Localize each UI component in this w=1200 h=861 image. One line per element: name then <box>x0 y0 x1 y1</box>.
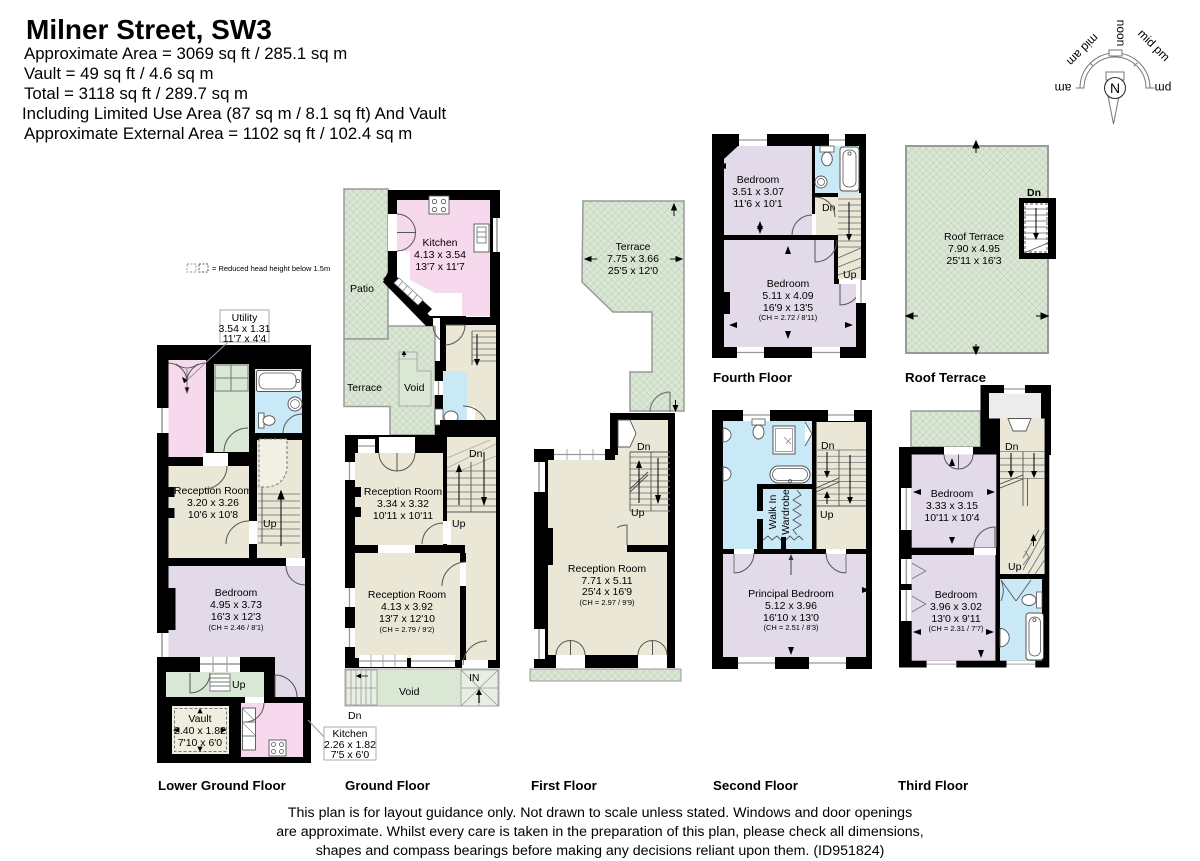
svg-text:Including Limited Use Area (87: Including Limited Use Area (87 sq m / 8.… <box>22 104 446 123</box>
svg-text:3.51 x 3.07: 3.51 x 3.07 <box>732 186 784 198</box>
svg-text:Roof Terrace: Roof Terrace <box>944 231 1004 243</box>
svg-text:25'5 x 12'0: 25'5 x 12'0 <box>608 265 658 277</box>
svg-text:Dn: Dn <box>469 448 483 460</box>
svg-text:(CH = 2.51 / 8'3): (CH = 2.51 / 8'3) <box>764 623 820 632</box>
svg-text:Principal Bedroom: Principal Bedroom <box>748 588 834 600</box>
svg-text:3.96 x 3.02: 3.96 x 3.02 <box>930 601 982 613</box>
svg-text:Wardrobe: Wardrobe <box>780 489 792 535</box>
svg-text:13'7 x 12'10: 13'7 x 12'10 <box>379 613 435 625</box>
svg-text:Up: Up <box>232 679 246 691</box>
svg-text:Patio: Patio <box>350 283 374 295</box>
svg-text:2.40 x 1.82: 2.40 x 1.82 <box>174 725 226 737</box>
svg-text:noon: noon <box>1114 20 1128 47</box>
svg-text:Bedroom: Bedroom <box>935 589 978 601</box>
svg-text:Reception Room: Reception Room <box>368 589 446 601</box>
svg-text:Up: Up <box>263 518 277 530</box>
svg-text:Third Floor: Third Floor <box>898 778 968 793</box>
svg-text:25'4 x 16'9: 25'4 x 16'9 <box>582 586 632 598</box>
svg-text:13'7 x 11'7: 13'7 x 11'7 <box>415 261 465 273</box>
svg-text:3.33 x 3.15: 3.33 x 3.15 <box>926 500 978 512</box>
svg-text:Void: Void <box>399 686 420 698</box>
svg-text:Vault: Vault <box>188 713 211 725</box>
svg-text:Up: Up <box>1008 561 1022 573</box>
svg-text:Approximate External Area = 11: Approximate External Area = 1102 sq ft /… <box>24 124 412 143</box>
svg-text:10'6 x 10'8: 10'6 x 10'8 <box>188 509 238 521</box>
svg-text:Up: Up <box>843 269 857 281</box>
svg-text:First Floor: First Floor <box>531 778 597 793</box>
svg-text:(CH = 2.97 / 9'9): (CH = 2.97 / 9'9) <box>580 598 636 607</box>
svg-text:Bedroom: Bedroom <box>931 488 974 500</box>
svg-text:Reception Room: Reception Room <box>364 486 442 498</box>
svg-text:Up: Up <box>452 518 466 530</box>
svg-text:Reception Room: Reception Room <box>174 485 252 497</box>
svg-text:(CH = 2.72 / 8'11): (CH = 2.72 / 8'11) <box>759 313 818 322</box>
svg-text:mid pm: mid pm <box>1135 26 1173 64</box>
svg-text:Total = 3118 sq ft / 289.7 sq: Total = 3118 sq ft / 289.7 sq m <box>24 84 248 103</box>
svg-text:11'6 x 10'1: 11'6 x 10'1 <box>733 198 783 210</box>
svg-text:Bedroom: Bedroom <box>737 174 780 186</box>
svg-text:Void: Void <box>404 382 425 394</box>
svg-text:10'11 x 10'11: 10'11 x 10'11 <box>373 510 433 522</box>
svg-text:shapes and compass bearings be: shapes and compass bearings before makin… <box>316 843 885 859</box>
svg-text:Up: Up <box>631 507 645 519</box>
svg-text:Terrace: Terrace <box>347 382 382 394</box>
svg-text:This plan is for layout guidan: This plan is for layout guidance only. N… <box>288 805 912 821</box>
svg-text:N: N <box>1110 80 1120 96</box>
svg-text:are approximate. Whilst every: are approximate. Whilst every care is ta… <box>276 824 923 840</box>
svg-text:4.13 x 3.54: 4.13 x 3.54 <box>414 249 466 261</box>
svg-text:am: am <box>1055 81 1072 95</box>
svg-text:Up: Up <box>820 509 834 521</box>
svg-text:3.20 x 3.26: 3.20 x 3.26 <box>187 497 239 509</box>
svg-text:Reception Room: Reception Room <box>568 563 646 575</box>
svg-text:Dn: Dn <box>822 202 836 214</box>
svg-text:25'11 x 16'3: 25'11 x 16'3 <box>946 255 1001 267</box>
svg-text:(CH = 2.79 / 9'2): (CH = 2.79 / 9'2) <box>380 625 436 634</box>
svg-text:Kitchen: Kitchen <box>422 237 457 249</box>
svg-text:(CH = 2.31 / 7'7): (CH = 2.31 / 7'7) <box>929 624 985 633</box>
svg-text:7.75 x 3.66: 7.75 x 3.66 <box>607 253 659 265</box>
svg-text:7.90 x 4.95: 7.90 x 4.95 <box>948 243 1000 255</box>
svg-text:Approximate Area = 3069 sq ft: Approximate Area = 3069 sq ft / 285.1 sq… <box>24 44 347 63</box>
svg-text:Second Floor: Second Floor <box>713 778 798 793</box>
svg-text:7'5 x 6'0: 7'5 x 6'0 <box>331 749 370 761</box>
svg-text:16'3 x 12'3: 16'3 x 12'3 <box>211 611 261 623</box>
svg-text:Walk In: Walk In <box>767 495 779 530</box>
svg-text:5.11 x 4.09: 5.11 x 4.09 <box>762 290 813 302</box>
svg-text:Bedroom: Bedroom <box>215 587 258 599</box>
svg-text:11'7 x 4'4: 11'7 x 4'4 <box>223 333 267 345</box>
svg-text:4.95 x 3.73: 4.95 x 3.73 <box>210 599 262 611</box>
svg-text:Roof Terrace: Roof Terrace <box>905 370 986 385</box>
svg-text:Lower Ground Floor: Lower Ground Floor <box>158 778 286 793</box>
svg-text:(CH = 2.46 / 8'1): (CH = 2.46 / 8'1) <box>209 623 265 632</box>
svg-text:5.12 x 3.96: 5.12 x 3.96 <box>765 600 817 612</box>
svg-text:IN: IN <box>469 672 480 684</box>
svg-text:10'11 x 10'4: 10'11 x 10'4 <box>924 512 979 524</box>
svg-text:Bedroom: Bedroom <box>767 278 810 290</box>
svg-text:Fourth Floor: Fourth Floor <box>713 370 792 385</box>
svg-text:Ground Floor: Ground Floor <box>345 778 430 793</box>
svg-text:Dn: Dn <box>637 441 651 453</box>
svg-text:Milner Street, SW3: Milner Street, SW3 <box>26 14 272 45</box>
svg-text:Terrace: Terrace <box>615 241 650 253</box>
svg-text:Dn: Dn <box>1027 187 1041 199</box>
svg-text:Dn: Dn <box>348 710 362 722</box>
svg-text:3.34 x 3.32: 3.34 x 3.32 <box>377 498 429 510</box>
svg-text:pm: pm <box>1155 81 1172 95</box>
svg-text:4.13 x 3.92: 4.13 x 3.92 <box>381 601 433 613</box>
svg-text:= Reduced head height below 1.: = Reduced head height below 1.5m <box>212 264 330 273</box>
svg-text:Vault = 49 sq ft / 4.6 sq m: Vault = 49 sq ft / 4.6 sq m <box>24 64 214 83</box>
